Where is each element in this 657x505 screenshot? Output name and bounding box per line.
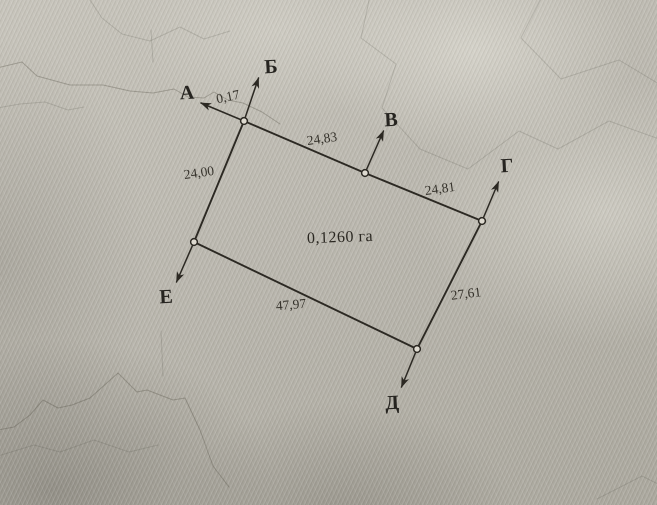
crease-line [597, 476, 657, 499]
boundary-edge-b-v [244, 121, 365, 173]
vertex-label-a: А [179, 82, 195, 105]
direction-arrow-v [365, 131, 384, 173]
direction-arrow-a [201, 103, 244, 121]
scanned-parcel-sketch: А Б В Г Д Е 0,17 24,83 24,81 27,61 47,97… [0, 0, 657, 505]
boundary-edge-v-g [365, 173, 482, 221]
crease-line [161, 331, 163, 376]
direction-arrow-g [482, 182, 499, 221]
direction-arrow-e [177, 242, 195, 282]
crease-line [0, 440, 158, 456]
crease-line [151, 30, 153, 62]
boundary-point-ab [241, 118, 248, 125]
boundary-edge-e-a [194, 121, 244, 242]
side-length-labels: 0,17 24,83 24,81 27,61 47,97 24,00 [183, 87, 482, 314]
boundary-point-v [362, 170, 369, 177]
direction-arrow-b [244, 78, 259, 121]
crease-line [88, 0, 230, 41]
crease-line [361, 0, 657, 169]
side-length-d-e: 47,97 [275, 296, 307, 314]
side-length-v-g: 24,81 [424, 179, 456, 198]
side-length-a-b: 0,17 [215, 87, 241, 107]
boundary-point-e [191, 239, 198, 246]
area-label: 0,1260 га [307, 228, 374, 247]
vertex-label-e: Е [159, 286, 173, 309]
paper-crease-lines [0, 0, 657, 499]
boundary-edge-d-e [194, 242, 417, 349]
vertex-label-b: Б [264, 56, 278, 79]
boundary-point-d [414, 346, 421, 353]
boundary-point-g [479, 218, 486, 225]
vertex-label-v: В [384, 109, 398, 132]
vertex-label-d: Д [385, 392, 400, 415]
side-length-g-d: 27,61 [450, 284, 482, 303]
crease-line [521, 0, 657, 84]
vertex-label-g: Г [500, 155, 514, 178]
side-length-b-v: 24,83 [306, 129, 338, 148]
crease-line [0, 373, 229, 487]
side-length-e-a: 24,00 [183, 163, 215, 182]
direction-arrow-d [402, 349, 418, 387]
crease-line [0, 102, 84, 110]
parcel-diagram: А Б В Г Д Е 0,17 24,83 24,81 27,61 47,97… [0, 0, 657, 505]
